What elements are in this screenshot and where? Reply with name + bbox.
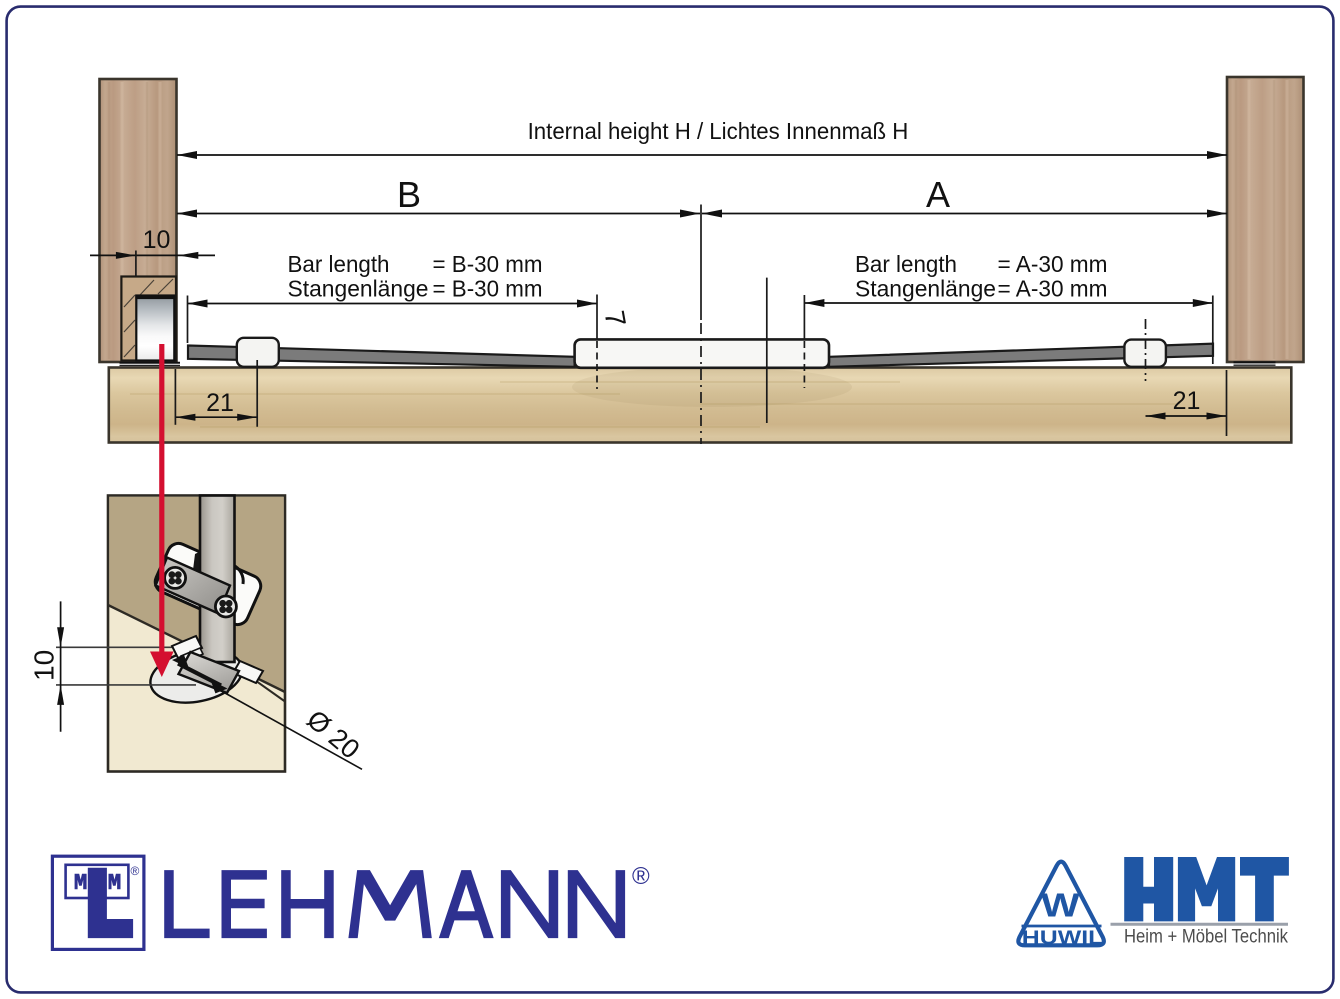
svg-text:Stangenlänge: Stangenlänge <box>855 276 996 302</box>
svg-text:Bar length: Bar length <box>855 251 957 277</box>
svg-text:A: A <box>926 174 950 215</box>
svg-text:= A-30 mm: = A-30 mm <box>998 276 1108 302</box>
svg-text:®: ® <box>131 864 140 878</box>
svg-text:10: 10 <box>143 226 171 254</box>
svg-text:= B-30 mm: = B-30 mm <box>433 251 543 277</box>
svg-text:W: W <box>1041 886 1081 923</box>
svg-text:Internal height H / Lichtes In: Internal height H / Lichtes Innenmaß H <box>528 118 909 144</box>
svg-text:HUWIL: HUWIL <box>1022 928 1104 949</box>
svg-text:21: 21 <box>206 389 234 417</box>
svg-text:= B-30 mm: = B-30 mm <box>433 276 543 302</box>
svg-text:10: 10 <box>29 650 60 681</box>
svg-text:21: 21 <box>1173 387 1201 415</box>
svg-text:®: ® <box>632 863 650 890</box>
svg-text:B: B <box>397 174 421 215</box>
svg-text:Heim + Möbel Technik: Heim + Möbel Technik <box>1124 926 1288 948</box>
svg-text:= A-30 mm: = A-30 mm <box>998 251 1108 277</box>
svg-text:Bar length: Bar length <box>288 251 390 277</box>
svg-text:Stangenlänge: Stangenlänge <box>288 276 429 302</box>
